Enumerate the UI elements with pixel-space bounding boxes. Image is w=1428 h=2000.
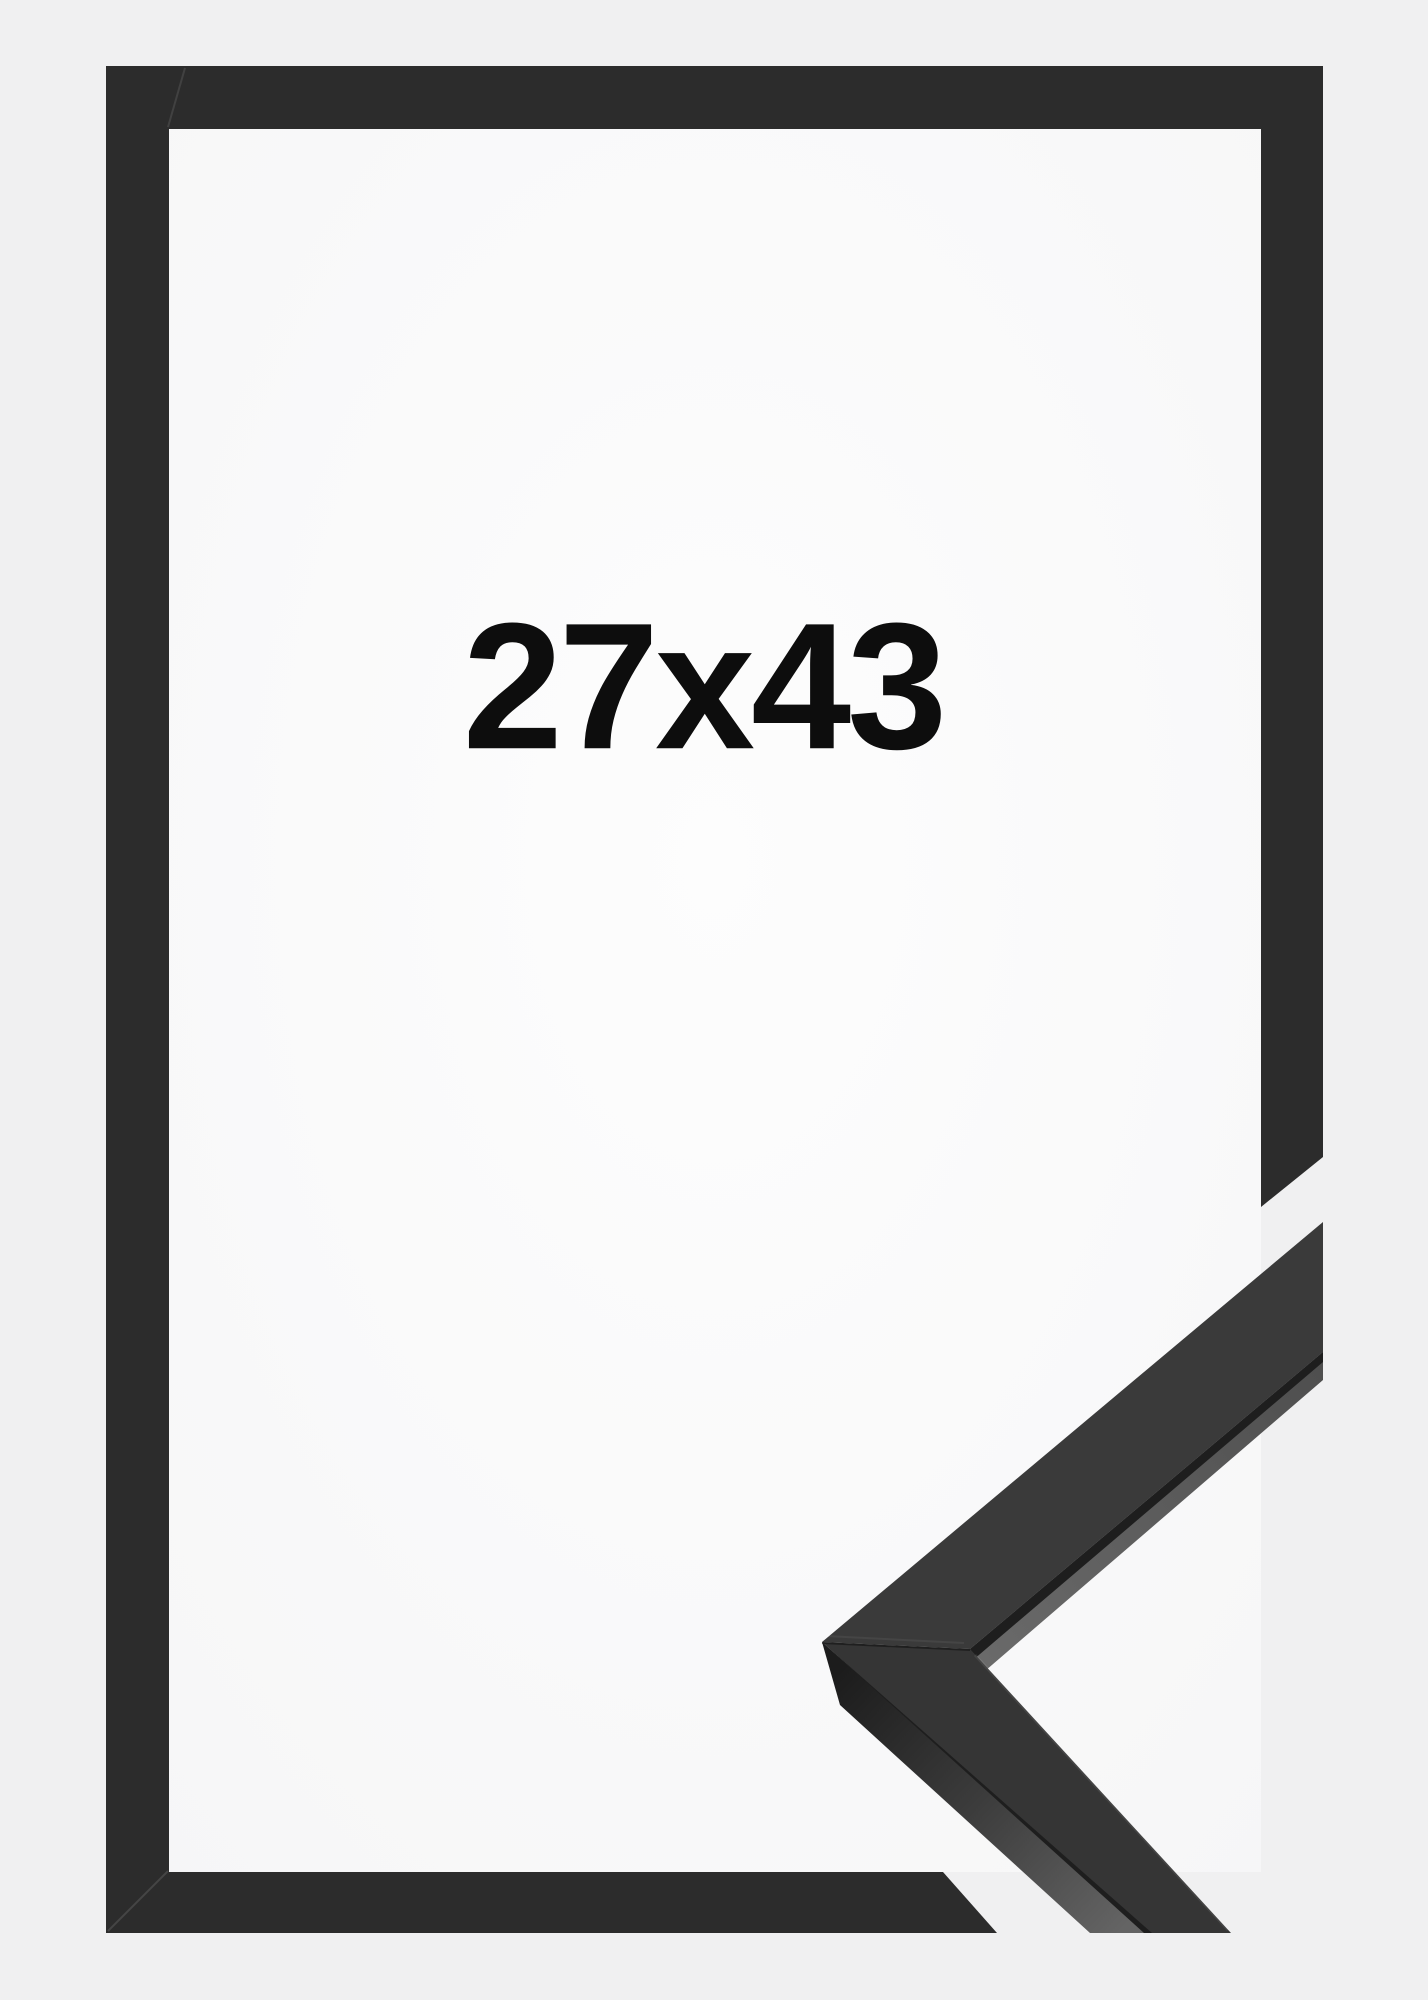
frame-bar-bottom [106,1872,997,1933]
frame-bar-top [106,66,1323,129]
frame-bar-left [106,66,169,1933]
frame-bar-right [1261,129,1323,1207]
frame-inner-area [169,129,1261,1872]
frame-product-graphic [0,0,1428,2000]
size-label: 27x43 [463,583,944,790]
product-image-canvas: 27x43 [0,0,1428,2000]
